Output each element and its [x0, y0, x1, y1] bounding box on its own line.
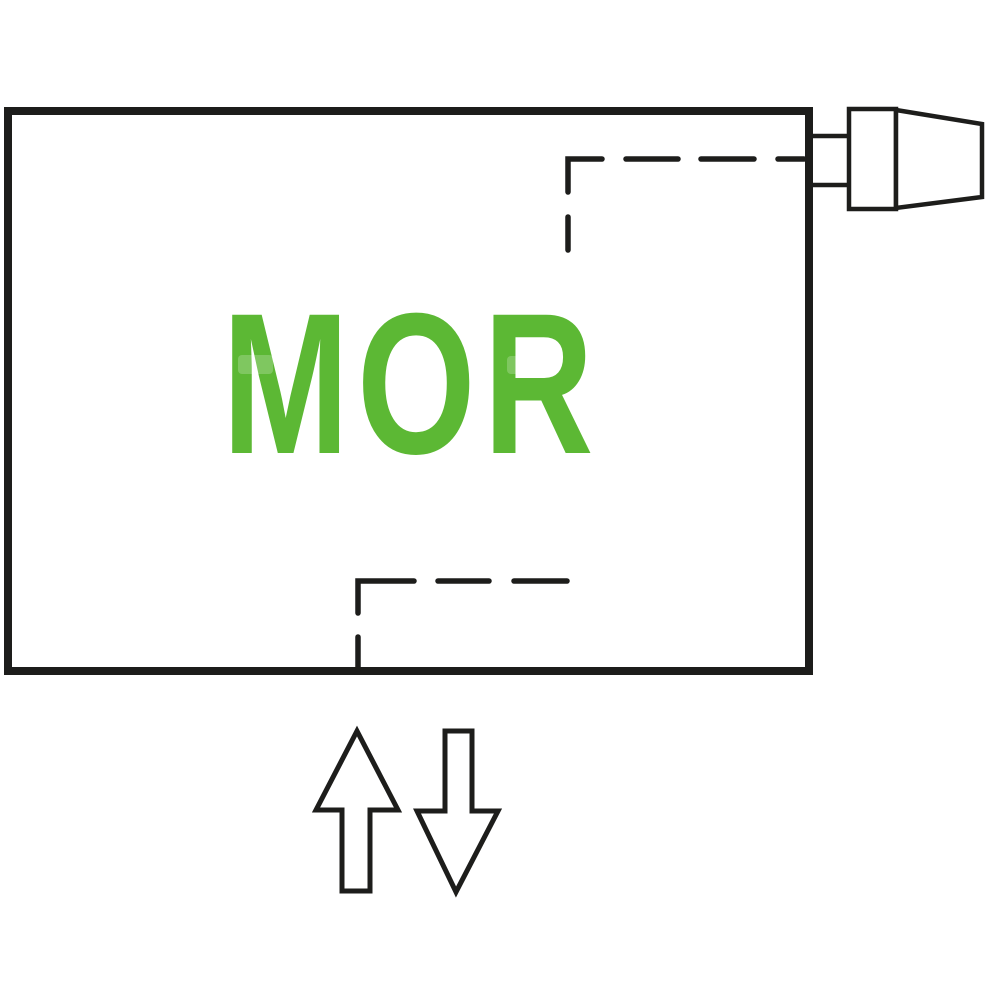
highlight-patch: [238, 355, 273, 374]
dashed-connection-bottom-center: [358, 581, 567, 669]
flow-arrows-group: [316, 731, 498, 892]
panel-model-label: MOR: [222, 271, 601, 496]
diagram-canvas: MOR: [0, 0, 1000, 1000]
linework-group: [8, 109, 982, 892]
radiator-diagram-svg: MOR: [0, 0, 1000, 1000]
thermostatic-valve-icon: [849, 109, 982, 209]
dashed-connection-top-right: [568, 159, 804, 250]
flow-arrow-down-icon: [417, 731, 498, 892]
valve-body: [849, 109, 896, 209]
valve-cone: [896, 110, 982, 208]
highlight-patch: [507, 356, 526, 374]
flow-arrow-up-icon: [316, 731, 398, 891]
dashed-corner-segment: [358, 581, 414, 613]
dashed-corner-segment: [568, 159, 602, 192]
